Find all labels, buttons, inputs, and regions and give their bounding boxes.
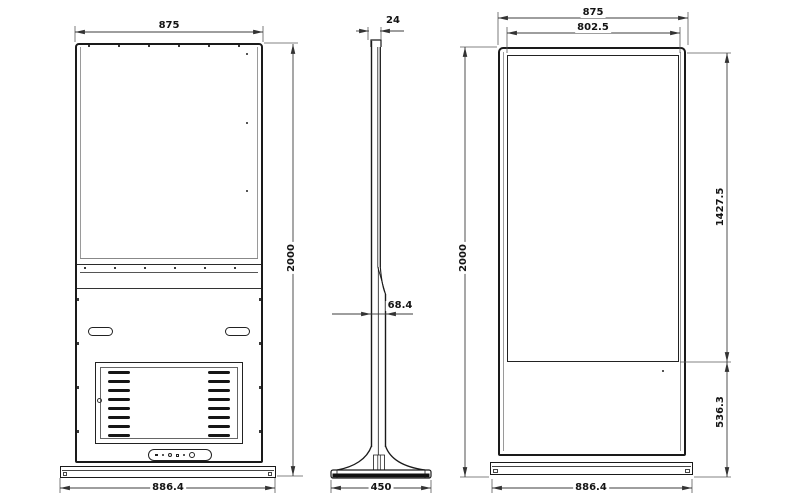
extension-lines: [60, 12, 731, 493]
dim-label-front-top-width: 875: [581, 8, 606, 18]
foot-base-plate-fill: [333, 474, 430, 478]
foot-junction-box: [374, 455, 385, 470]
side-view-profile: [331, 40, 431, 478]
dim-label-side-body-depth: 68.4: [386, 301, 415, 311]
dim-label-back-height: 2000: [287, 242, 297, 274]
kiosk-dimension-drawing: 875 2000 886.4 24 68.4 450 875 802.5 200…: [0, 0, 800, 500]
dim-label-front-screen-width: 802.5: [575, 23, 611, 33]
foot-curve-right: [386, 446, 426, 470]
dim-label-side-base-depth: 450: [369, 483, 394, 493]
dimension-linework: [0, 0, 800, 500]
dim-label-front-height: 2000: [459, 242, 469, 274]
side-top-cap: [371, 40, 381, 47]
dimension-lines: [60, 18, 727, 488]
dim-label-back-top-width: 875: [157, 21, 182, 31]
dim-label-front-screen-height: 1427.5: [716, 186, 726, 229]
foot-curve-left: [337, 446, 372, 470]
dim-label-front-base-width: 886.4: [573, 483, 609, 493]
dim-label-front-lower-height: 536.3: [716, 394, 726, 430]
dim-label-back-base-width: 886.4: [150, 483, 186, 493]
dim-label-side-panel-depth: 24: [384, 16, 402, 26]
